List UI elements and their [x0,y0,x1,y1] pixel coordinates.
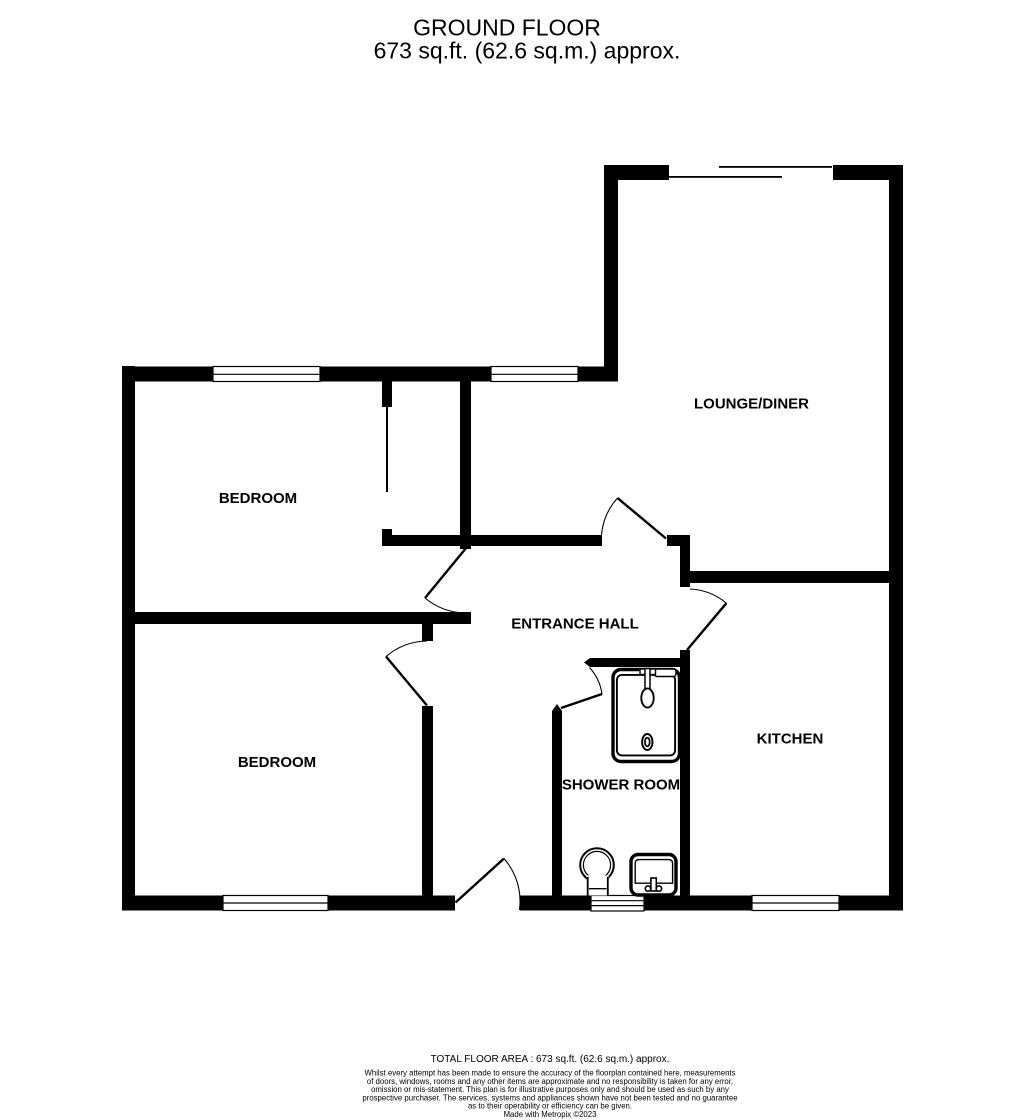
svg-text:Made with Metropix ©2023: Made with Metropix ©2023 [504,1110,597,1119]
svg-text:SHOWER ROOM: SHOWER ROOM [562,777,680,794]
svg-text:ENTRANCE HALL: ENTRANCE HALL [511,616,639,633]
svg-text:673 sq.ft. (62.6 sq.m.) approx: 673 sq.ft. (62.6 sq.m.) approx. [374,38,681,64]
svg-text:BEDROOM: BEDROOM [219,490,297,507]
svg-text:TOTAL FLOOR AREA : 673 sq.ft.: TOTAL FLOOR AREA : 673 sq.ft. (62.6 sq.m… [431,1054,670,1065]
svg-text:KITCHEN: KITCHEN [757,731,824,748]
svg-text:LOUNGE/DINER: LOUNGE/DINER [694,396,809,413]
svg-text:BEDROOM: BEDROOM [238,754,316,771]
